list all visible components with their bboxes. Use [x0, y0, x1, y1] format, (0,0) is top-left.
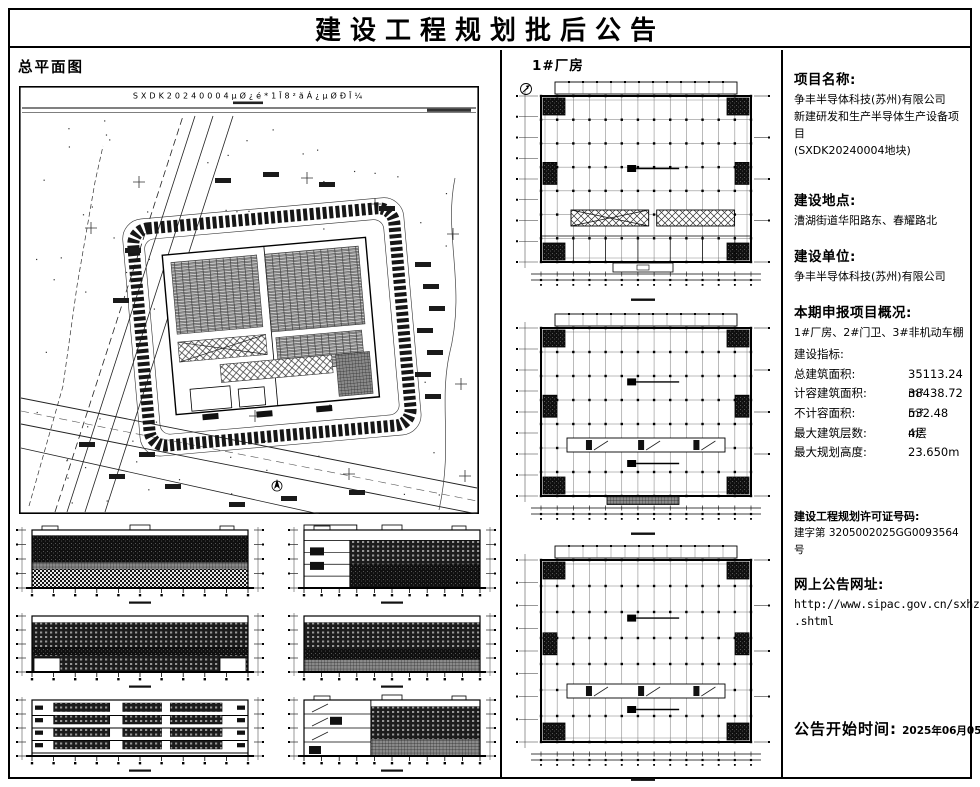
project-name-line: (SXDK20240004地块)	[794, 142, 964, 159]
factory-label: 1#厂房	[532, 54, 584, 74]
elevation-drawing-5	[14, 692, 266, 774]
builder-block: 建设单位: 争丰半导体科技(苏州)有限公司	[794, 245, 964, 285]
permit-heading: 建设工程规划许可证号码:	[794, 509, 964, 526]
notice-frame: 建设工程规划批后公告 总平面图 SXDK20240004μØ¿é*1Ī8²ãÁ¿…	[8, 8, 972, 779]
elevation-drawing-6	[286, 692, 498, 774]
indicator-value: 23.650m	[908, 443, 959, 463]
indicator-label: 计容建筑面积:	[794, 386, 867, 400]
site-plan-drawing-title: SXDK20240004μØ¿é*1Ī8²ãÁ¿μØÐĪ¼	[133, 90, 365, 101]
project-name-line: 新建研发和生产半导体生产设备项目	[794, 108, 964, 142]
project-name-line: 争丰半导体科技(苏州)有限公司	[794, 91, 964, 108]
builder-line: 争丰半导体科技(苏州)有限公司	[794, 268, 964, 285]
permit-number: 建字第 3205002025GG0093564 号	[794, 525, 964, 559]
website-url-line: .shtml	[794, 613, 964, 630]
page-title: 建设工程规划批后公告	[315, 10, 665, 47]
indicators-block: 建设指标: 总建筑面积: 35113.24 m² 计容建筑面积: 38438.7…	[794, 345, 964, 462]
indicator-value: 4层	[908, 424, 927, 444]
announcement-label: 公告开始时间:	[794, 720, 897, 738]
indicator-label: 不计容面积:	[794, 406, 855, 420]
location-line: 漕湖街道华阳路东、春耀路北	[794, 212, 964, 229]
location-block: 建设地点: 漕湖街道华阳路东、春耀路北	[794, 189, 964, 229]
builder-heading: 建设单位:	[794, 245, 964, 265]
elevation-drawing-4	[286, 608, 498, 690]
floor-plan-2	[511, 308, 775, 538]
announcement-date: 2025年06月05日	[902, 725, 980, 737]
project-name-block: 项目名称: 争丰半导体科技(苏州)有限公司 新建研发和生产半导体生产设备项目 (…	[794, 68, 964, 159]
floor-plan-1	[511, 76, 775, 304]
indicator-row: 最大规划高度: 23.650m	[794, 443, 964, 463]
indicator-label: 最大建筑层数:	[794, 426, 867, 440]
announcement-page: { "page": { "title": "建设工程规划批后公告" }, "le…	[0, 0, 980, 787]
indicator-row: 最大建筑层数: 4层	[794, 424, 964, 444]
info-panel: 项目名称: 争丰半导体科技(苏州)有限公司 新建研发和生产半导体生产设备项目 (…	[781, 50, 970, 777]
factory-plans-column: 1#厂房	[500, 50, 783, 777]
website-url-line: http://www.sipac.gov.cn/sxhzq/index	[794, 596, 964, 613]
title-band: 建设工程规划批后公告	[10, 10, 970, 48]
floor-plan-3	[511, 540, 775, 784]
website-block: 网上公告网址: http://www.sipac.gov.cn/sxhzq/in…	[794, 573, 964, 631]
website-heading: 网上公告网址:	[794, 573, 964, 593]
indicator-row: 不计容面积: 532.48 m²	[794, 404, 964, 424]
elevation-drawing-1	[14, 522, 266, 606]
overview-heading: 本期申报项目概况:	[794, 301, 964, 321]
elevation-drawing-3	[14, 608, 266, 690]
indicator-row: 总建筑面积: 35113.24 m²	[794, 365, 964, 385]
site-plan-label: 总平面图	[18, 56, 84, 77]
announcement-start: 公告开始时间: 2025年06月05日	[794, 718, 964, 753]
project-name-heading: 项目名称:	[794, 68, 964, 88]
overview-block: 本期申报项目概况: 1#厂房、2#门卫、3#非机动车棚	[794, 301, 964, 341]
indicators-heading: 建设指标:	[794, 345, 964, 365]
site-plan-drawing: SXDK20240004μØ¿é*1Ī8²ãÁ¿μØÐĪ¼	[19, 86, 479, 514]
overview-line: 1#厂房、2#门卫、3#非机动车棚	[794, 324, 964, 341]
permit-block: 建设工程规划许可证号码: 建字第 3205002025GG0093564 号	[794, 509, 964, 559]
indicator-label: 总建筑面积:	[794, 367, 855, 381]
elevation-drawing-2	[286, 522, 498, 606]
indicator-row: 计容建筑面积: 38438.72 m²	[794, 384, 964, 404]
indicator-label: 最大规划高度:	[794, 445, 867, 459]
location-heading: 建设地点:	[794, 189, 964, 209]
left-column: 总平面图 SXDK20240004μØ¿é*1Ī8²ãÁ¿μØÐĪ¼	[10, 50, 500, 777]
